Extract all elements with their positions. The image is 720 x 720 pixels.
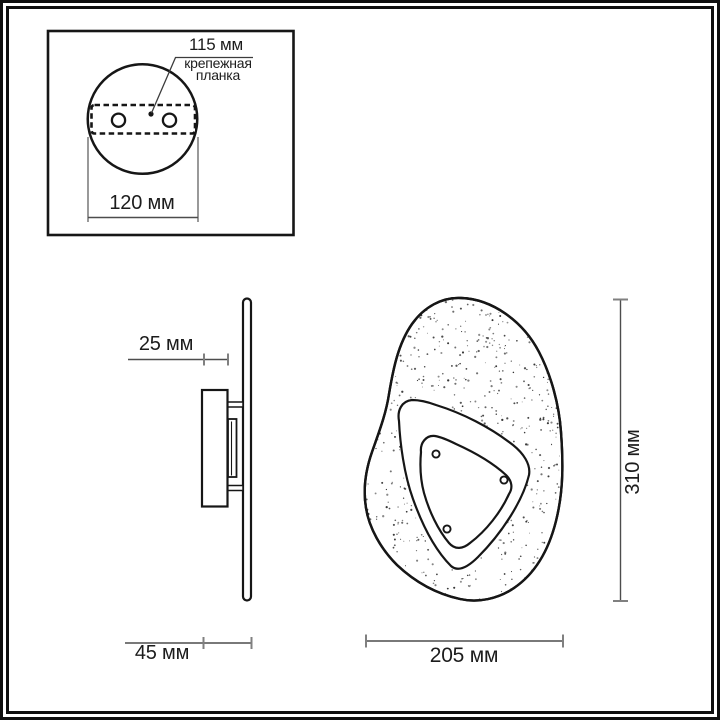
plate-depth-label: 25 мм: [114, 334, 218, 354]
led-module-edge: [228, 419, 237, 477]
mounting-bracket-label-line2: планка: [164, 70, 272, 82]
bracket-bottom: [228, 486, 244, 491]
front-screw-hole-2: [500, 476, 507, 483]
mounting-plate-dashed: [92, 105, 196, 134]
glass-panel-edge: [243, 299, 251, 601]
mounting-bracket-label: крепежная планка: [164, 58, 272, 81]
plate-screw-hole-right: [163, 114, 176, 127]
lamp-dimension-drawing: 115 мм крепежная планка 120 мм 25 мм 45 …: [0, 0, 720, 720]
driver-box: [202, 390, 228, 507]
front-view: [364, 297, 563, 601]
front-screw-hole-1: [432, 450, 439, 457]
canopy-diameter-label: 120 мм: [86, 193, 198, 213]
plate-center-dot: [148, 111, 153, 116]
front-screw-hole-3: [443, 525, 450, 532]
bracket-top: [228, 402, 244, 407]
dim-25mm: [128, 354, 228, 366]
plate-screw-hole-left: [112, 114, 125, 127]
panel-height-label: 310 мм: [623, 392, 647, 532]
panel-width-label: 205 мм: [408, 645, 520, 666]
hole-spacing-label: 115 мм: [172, 36, 260, 53]
drawing-canvas: [0, 0, 720, 720]
total-depth-label: 45 мм: [110, 643, 214, 663]
